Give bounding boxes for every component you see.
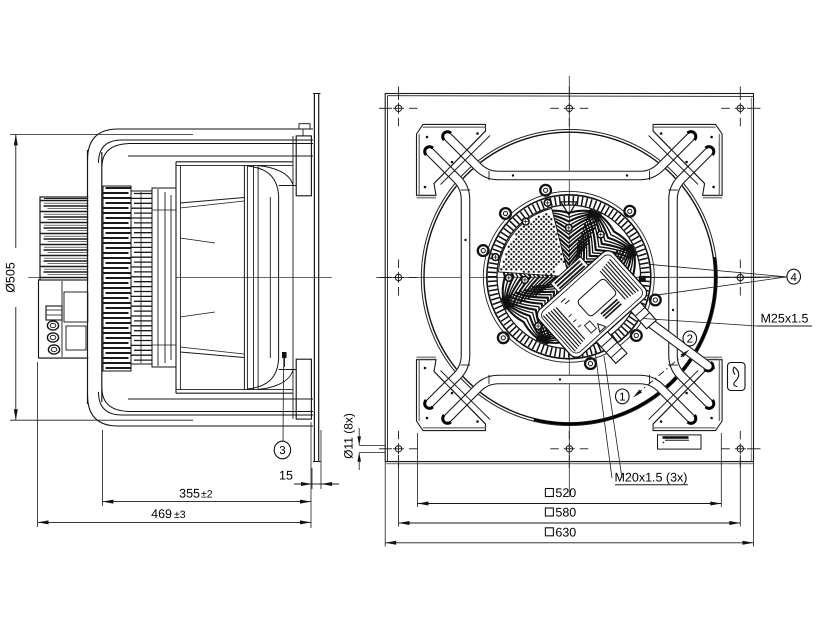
svg-text:4: 4 [790, 272, 797, 284]
svg-text:630: 630 [555, 525, 576, 539]
svg-text:1: 1 [619, 392, 625, 404]
svg-text:15: 15 [279, 469, 293, 483]
svg-text:Ø11 (8x): Ø11 (8x) [342, 413, 356, 459]
svg-text:355: 355 [179, 487, 200, 501]
svg-text:±3: ±3 [174, 509, 186, 521]
svg-text:3: 3 [279, 445, 285, 457]
svg-text:469: 469 [151, 507, 172, 521]
svg-text:M20x1.5 (3x): M20x1.5 (3x) [615, 471, 688, 485]
svg-text:Ø505: Ø505 [4, 262, 18, 293]
svg-text:520: 520 [555, 486, 576, 500]
svg-text:M25x1.5: M25x1.5 [761, 312, 809, 326]
svg-text:580: 580 [555, 506, 576, 520]
svg-text:2: 2 [687, 334, 693, 346]
svg-text:±2: ±2 [201, 489, 213, 501]
